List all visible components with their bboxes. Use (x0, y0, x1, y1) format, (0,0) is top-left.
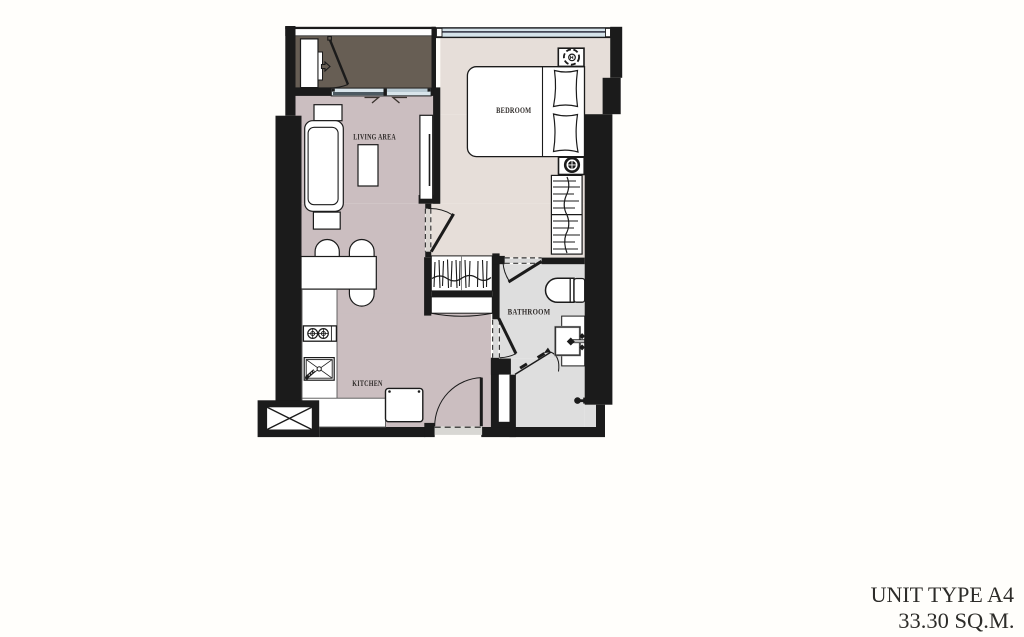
svg-text:BATHROOM: BATHROOM (508, 308, 551, 317)
svg-text:LIVING AREA: LIVING AREA (353, 133, 396, 142)
svg-text:33.30 SQ.M.: 33.30 SQ.M. (898, 608, 1014, 633)
svg-text:KITCHEN: KITCHEN (352, 379, 382, 388)
svg-text:BEDROOM: BEDROOM (496, 106, 531, 115)
svg-text:UNIT TYPE A4: UNIT TYPE A4 (871, 582, 1014, 607)
